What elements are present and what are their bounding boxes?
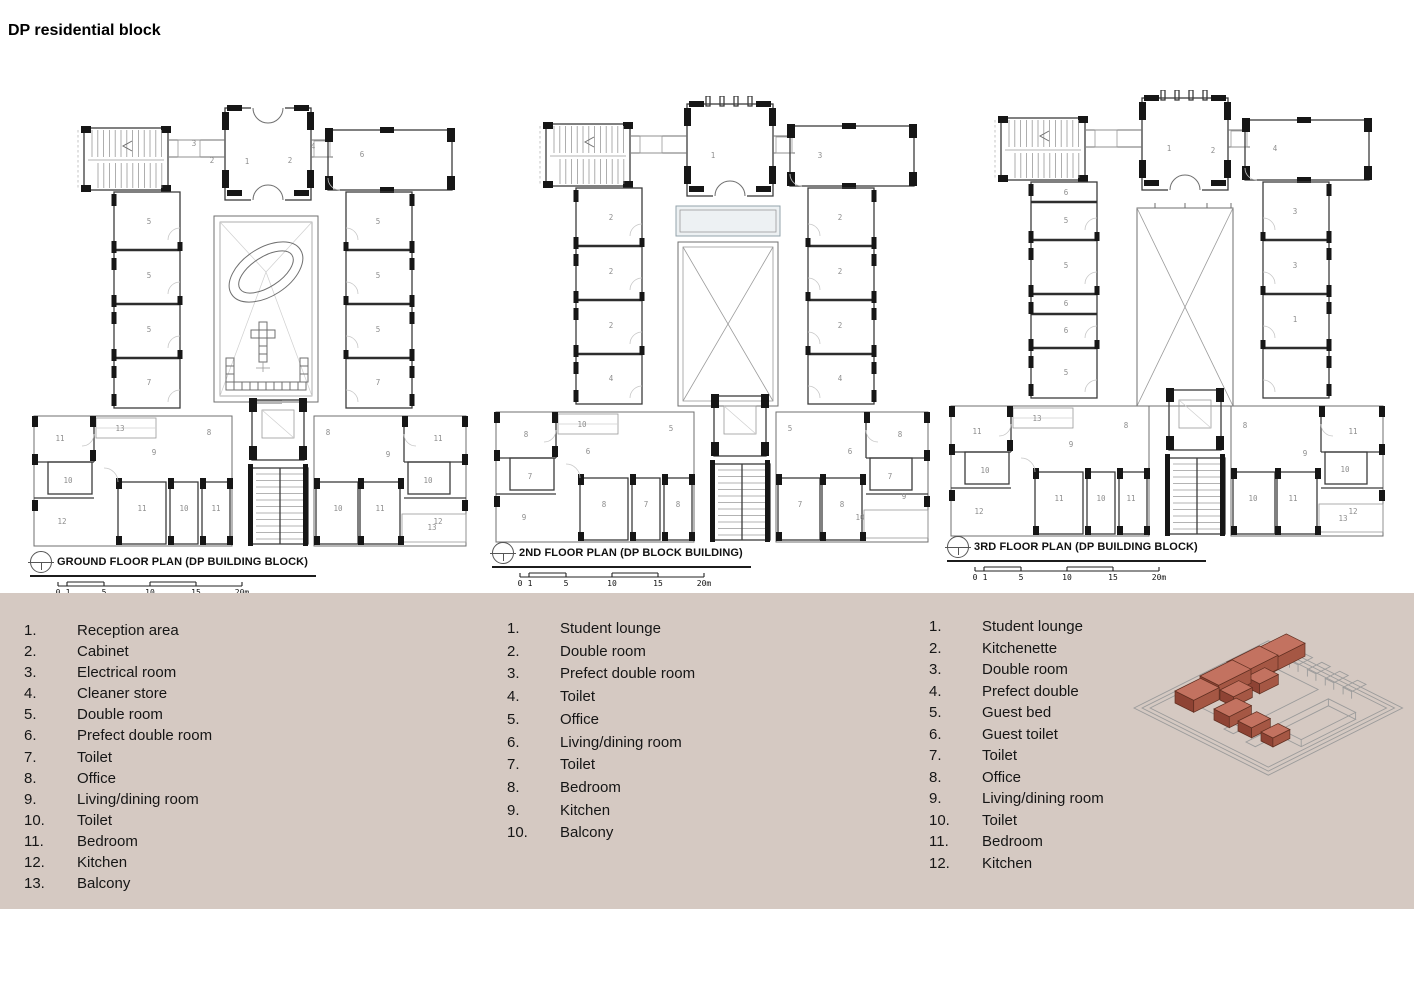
room-number-label: 8: [326, 428, 331, 437]
legend-item-label: Bedroom: [77, 831, 212, 852]
room-number-label: 12: [1348, 507, 1357, 516]
room-number-label: 4: [838, 374, 843, 383]
room-number-label: 10: [63, 476, 73, 485]
legend-item-number: 2.: [507, 641, 560, 664]
legend-item-number: 9.: [507, 800, 560, 823]
legend-item-number: 8.: [929, 767, 982, 789]
plan-title: GROUND FLOOR PLAN (DP BUILDING BLOCK): [57, 556, 308, 568]
legend-item-number: 3.: [507, 663, 560, 686]
room-number-label: 9: [902, 492, 907, 501]
room-number-label: 12: [57, 517, 66, 526]
room-number-label: 5: [147, 325, 152, 334]
room-number-label: 3: [1293, 207, 1298, 216]
plan-caption: GROUND FLOOR PLAN (DP BUILDING BLOCK) 0 …: [30, 551, 316, 596]
legend-item-label: Office: [560, 709, 695, 732]
legend-item-number: 4.: [929, 681, 982, 703]
room-number-label: 6: [848, 447, 853, 456]
legend-item-label: Prefect double: [982, 681, 1104, 703]
room-number-label: 9: [152, 448, 157, 457]
legend-item-number: 9.: [24, 789, 77, 810]
room-number-label: 2: [609, 213, 614, 222]
legend-item-number: 5.: [507, 709, 560, 732]
room-number-label: 10: [980, 466, 990, 475]
legend-item-number: 1.: [929, 616, 982, 638]
legend-item-label: Prefect double room: [77, 725, 212, 746]
legend-second-floor: 1.Student lounge2.Double room3.Prefect d…: [507, 618, 695, 845]
plan-title-row: 2ND FLOOR PLAN (DP BLOCK BUILDING): [492, 542, 751, 568]
room-number-label: 2: [838, 267, 843, 276]
plan-title: 2ND FLOOR PLAN (DP BLOCK BUILDING): [519, 547, 743, 559]
room-number-label: 13: [427, 523, 436, 532]
legend-item-label: Cleaner store: [77, 683, 212, 704]
room-number-label: 11: [1288, 494, 1297, 503]
room-number-label: 11: [1054, 494, 1063, 503]
legend-item-label: Toilet: [982, 745, 1104, 767]
legend-item-label: Double room: [77, 704, 212, 725]
legend-item-number: 4.: [507, 686, 560, 709]
legend-item-number: 4.: [24, 683, 77, 704]
room-number-label: 2: [1211, 146, 1216, 155]
scale-bar: 0 1 5 10 15 20m: [971, 564, 1171, 581]
plan-caption: 2ND FLOOR PLAN (DP BLOCK BUILDING) 0 1 5…: [492, 542, 751, 587]
room-number-label: 10: [333, 504, 343, 513]
legend-item-label: Living/dining room: [77, 789, 212, 810]
legend-item-number: 11.: [929, 831, 982, 853]
room-number-label: 1: [1293, 315, 1298, 324]
plan-title-row: GROUND FLOOR PLAN (DP BUILDING BLOCK): [30, 551, 316, 577]
legend-item-number: 6.: [507, 732, 560, 755]
room-number-label: 5: [147, 271, 152, 280]
room-number-label: 7: [528, 472, 533, 481]
room-number-label: 6: [586, 447, 591, 456]
room-number-label: 8: [840, 500, 845, 509]
legend-item-label: Bedroom: [982, 831, 1104, 853]
scale-tick-label: 15: [1108, 573, 1118, 581]
legend-item-label: Cabinet: [77, 641, 212, 662]
room-number-label: 7: [888, 472, 893, 481]
legend-item-label: Student lounge: [560, 618, 695, 641]
room-number-label: 2: [288, 156, 293, 165]
legend-item-label: Toilet: [982, 810, 1104, 832]
legend-item-number: 3.: [24, 662, 77, 683]
room-number-label: 9: [522, 513, 527, 522]
legend-item-number: 12.: [929, 853, 982, 875]
room-number-label: 1: [1167, 144, 1172, 153]
room-number-label: 7: [147, 378, 152, 387]
room-number-label: 8: [207, 428, 212, 437]
room-number-label: 2: [210, 156, 215, 165]
legend-panel: 1.Reception area2.Cabinet3.Electrical ro…: [0, 593, 1414, 909]
scale-tick-label: 10: [1062, 573, 1072, 581]
legend-ground-floor: 1.Reception area2.Cabinet3.Electrical ro…: [24, 620, 212, 894]
scale-tick-label: 5: [1019, 573, 1024, 581]
room-number-label: 3: [192, 139, 197, 148]
legend-item-label: Bedroom: [560, 777, 695, 800]
room-number-label: 4: [311, 142, 316, 151]
room-number-label: 7: [798, 500, 803, 509]
room-number-label: 8: [1243, 421, 1248, 430]
room-number-label: 8: [898, 430, 903, 439]
second-floor-plan-drawing: 13222422248105679878568778109: [490, 96, 934, 544]
datum-circle-icon: [947, 536, 969, 558]
room-number-label: 2: [838, 321, 843, 330]
legend-item-label: Living/dining room: [560, 732, 695, 755]
room-number-label: 3: [818, 151, 823, 160]
room-number-label: 13: [115, 424, 124, 433]
room-number-label: 13: [1338, 514, 1347, 523]
plan-caption: 3RD FLOOR PLAN (DP BUILDING BLOCK) 0 1 5…: [947, 536, 1206, 581]
scale-tick-label: 1: [528, 579, 533, 587]
legend-item-number: 1.: [507, 618, 560, 641]
legend-item-label: Toilet: [560, 754, 695, 777]
room-number-label: 9: [1303, 449, 1308, 458]
room-number-label: 2: [609, 321, 614, 330]
ground-floor-plan: 3212465557555711138910121110118911101210…: [28, 100, 472, 592]
room-number-label: 6: [1064, 326, 1069, 335]
room-number-label: 11: [211, 504, 220, 513]
legend-third-floor: 1.Student lounge2.Kitchenette3.Double ro…: [929, 616, 1104, 874]
ground-floor-plan-drawing: 3212465557555711138910121110118911101210…: [28, 100, 472, 548]
legend-item-number: 10.: [929, 810, 982, 832]
legend-item-number: 9.: [929, 788, 982, 810]
legend-item-number: 12.: [24, 852, 77, 873]
legend-item-number: 10.: [24, 810, 77, 831]
datum-circle-icon: [492, 542, 514, 564]
room-number-label: 10: [855, 513, 865, 522]
legend-item-label: Double room: [982, 659, 1104, 681]
room-number-label: 11: [433, 434, 442, 443]
room-number-label: 8: [602, 500, 607, 509]
scale-tick-label: 10: [607, 579, 617, 587]
room-number-label: 4: [609, 374, 614, 383]
room-number-label: 7: [376, 378, 381, 387]
room-number-label: 5: [376, 271, 381, 280]
legend-item-label: Toilet: [77, 810, 212, 831]
page-title: DP residential block: [8, 22, 161, 40]
legend-item-number: 8.: [24, 768, 77, 789]
room-number-label: 11: [972, 427, 981, 436]
room-number-label: 6: [360, 150, 365, 159]
scale-tick-label: 20m: [697, 579, 712, 587]
legend-item-number: 2.: [929, 638, 982, 660]
room-number-label: 5: [376, 325, 381, 334]
room-number-label: 10: [179, 504, 189, 513]
room-number-label: 2: [838, 213, 843, 222]
datum-circle-icon: [30, 551, 52, 573]
legend-item-number: 5.: [24, 704, 77, 725]
second-floor-plan: 13222422248105679878568778109 2ND FLOOR …: [490, 96, 934, 588]
room-number-label: 10: [1248, 494, 1258, 503]
room-number-label: 5: [1064, 368, 1069, 377]
legend-item-label: Balcony: [77, 873, 212, 894]
site-isometric-diagram: [1128, 630, 1410, 795]
legend-item-label: Toilet: [77, 747, 212, 768]
legend-item-number: 11.: [24, 831, 77, 852]
legend-item-number: 13.: [24, 873, 77, 894]
room-number-label: 5: [147, 217, 152, 226]
legend-item-label: Living/dining room: [982, 788, 1104, 810]
legend-item-number: 3.: [929, 659, 982, 681]
room-number-label: 12: [974, 507, 983, 516]
room-number-label: 6: [1064, 188, 1069, 197]
scale-tick-label: 0: [973, 573, 978, 581]
scale-tick-label: 5: [564, 579, 569, 587]
legend-item-number: 8.: [507, 777, 560, 800]
legend-item-label: Prefect double room: [560, 663, 695, 686]
room-number-label: 6: [1064, 299, 1069, 308]
room-number-label: 8: [1124, 421, 1129, 430]
room-number-label: 11: [1126, 494, 1135, 503]
legend-item-label: Kitchen: [560, 800, 695, 823]
plan-title-row: 3RD FLOOR PLAN (DP BUILDING BLOCK): [947, 536, 1206, 562]
room-number-label: 1: [711, 151, 716, 160]
room-number-label: 7: [644, 500, 649, 509]
legend-item-number: 7.: [24, 747, 77, 768]
legend-item-label: Balcony: [560, 822, 695, 845]
room-number-label: 5: [1064, 216, 1069, 225]
room-number-label: 5: [788, 424, 793, 433]
legend-item-number: 6.: [24, 725, 77, 746]
scale-tick-label: 20m: [1152, 573, 1167, 581]
room-number-label: 11: [55, 434, 64, 443]
legend-item-label: Toilet: [560, 686, 695, 709]
plan-title: 3RD FLOOR PLAN (DP BUILDING BLOCK): [974, 541, 1198, 553]
legend-item-label: Electrical room: [77, 662, 212, 683]
legend-item-number: 6.: [929, 724, 982, 746]
room-number-label: 5: [376, 217, 381, 226]
room-number-label: 5: [1064, 261, 1069, 270]
third-floor-plan-drawing: 1246556653311113891012111011891110121011…: [945, 90, 1389, 538]
legend-item-label: Kitchen: [982, 853, 1104, 875]
room-number-label: 9: [386, 450, 391, 459]
room-number-label: 11: [1348, 427, 1357, 436]
room-number-label: 9: [1069, 440, 1074, 449]
room-number-label: 10: [577, 420, 587, 429]
legend-item-number: 10.: [507, 822, 560, 845]
room-number-label: 3: [1293, 261, 1298, 270]
legend-item-label: Office: [982, 767, 1104, 789]
third-floor-plan: 1246556653311113891012111011891110121011…: [945, 90, 1389, 582]
room-number-label: 10: [423, 476, 433, 485]
legend-item-label: Reception area: [77, 620, 212, 641]
legend-item-label: Student lounge: [982, 616, 1104, 638]
room-number-label: 1: [245, 157, 250, 166]
legend-item-label: Guest toilet: [982, 724, 1104, 746]
room-number-label: 11: [137, 504, 146, 513]
scale-tick-label: 1: [983, 573, 988, 581]
room-number-label: 10: [1096, 494, 1106, 503]
legend-item-label: Guest bed: [982, 702, 1104, 724]
scale-bar: 0 1 5 10 15 20m: [516, 570, 716, 587]
legend-item-label: Kitchen: [77, 852, 212, 873]
legend-item-number: 2.: [24, 641, 77, 662]
legend-item-number: 1.: [24, 620, 77, 641]
room-number-label: 13: [1032, 414, 1041, 423]
legend-item-number: 5.: [929, 702, 982, 724]
legend-item-label: Double room: [560, 641, 695, 664]
legend-item-label: Office: [77, 768, 212, 789]
scale-tick-label: 0: [518, 579, 523, 587]
room-number-label: 10: [1340, 465, 1350, 474]
room-number-label: 5: [669, 424, 674, 433]
room-number-label: 8: [676, 500, 681, 509]
legend-item-number: 7.: [507, 754, 560, 777]
scale-tick-label: 15: [653, 579, 663, 587]
legend-item-number: 7.: [929, 745, 982, 767]
room-number-label: 11: [375, 504, 384, 513]
room-number-label: 4: [1273, 144, 1278, 153]
legend-item-label: Kitchenette: [982, 638, 1104, 660]
room-number-label: 8: [524, 430, 529, 439]
room-number-label: 2: [609, 267, 614, 276]
drawing-sheet: DP residential block 3212465557555711138…: [0, 0, 1414, 1000]
